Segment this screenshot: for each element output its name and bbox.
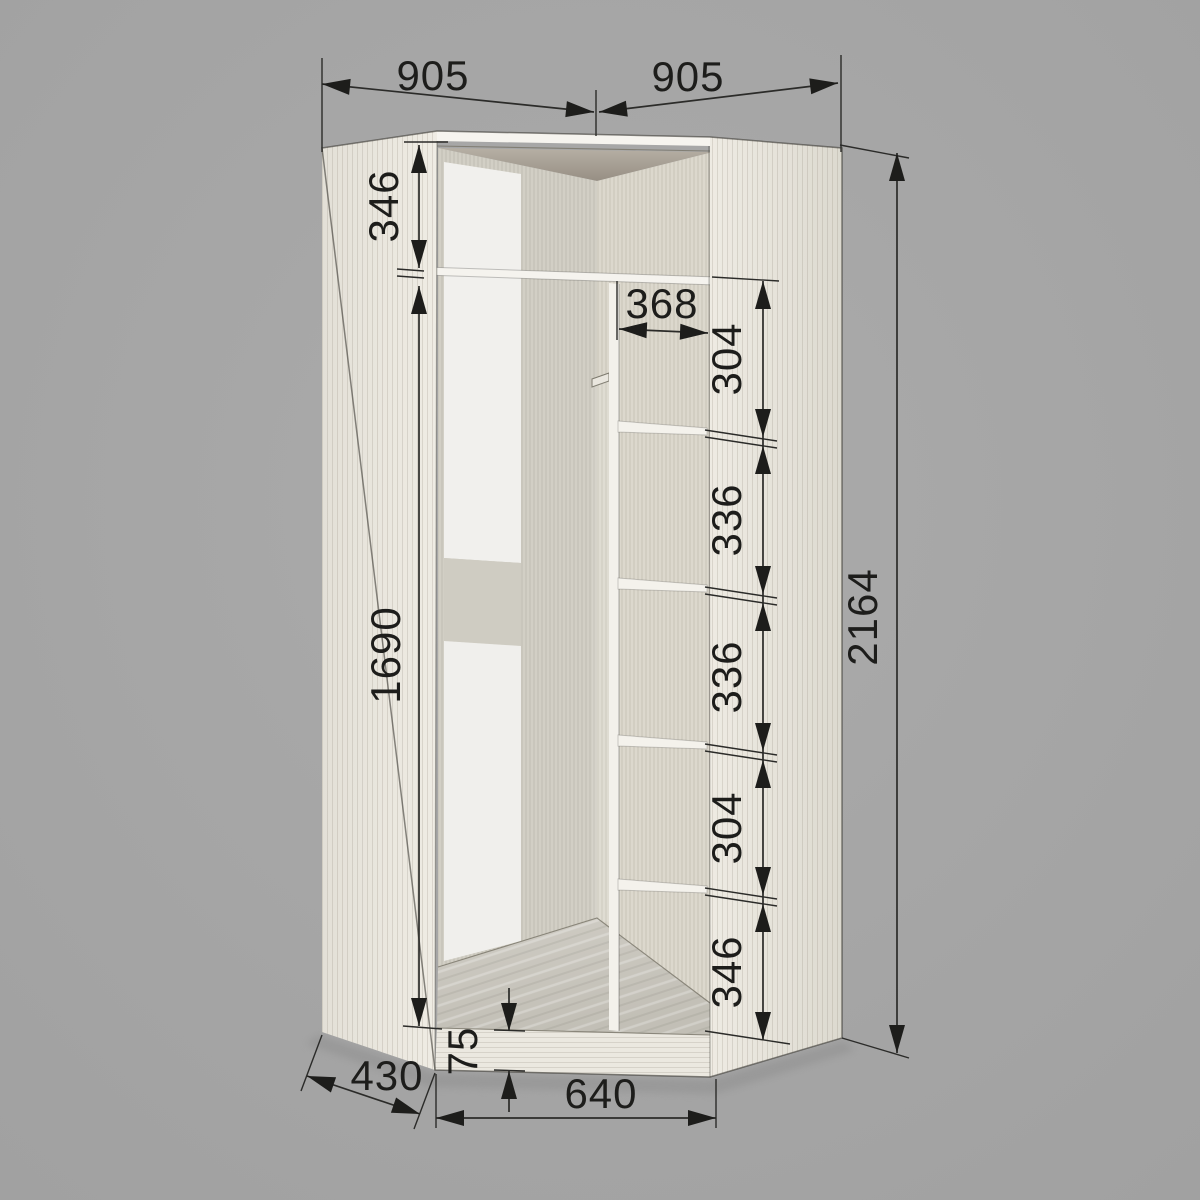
mirror-panel-upper [444,162,521,563]
back-wall-ledge-strip [592,381,609,922]
wardrobe-cabinet [322,131,842,1077]
dim-column-width: 368 [617,280,708,340]
dim-label: 304 [703,322,750,395]
dim-label: 905 [651,53,724,100]
mirror-panel-lower [444,641,521,961]
dim-label: 304 [703,791,750,864]
dim-label: 336 [703,640,750,713]
dim-label: 336 [703,483,750,556]
dim-label: 346 [703,935,750,1008]
dim-label: 905 [396,52,469,99]
dim-label: 640 [564,1070,637,1117]
wardrobe-dimension-diagram: 905 905 2164 346 1690 [0,0,1200,1200]
dim-label: 368 [625,280,698,327]
dim-label: 1690 [362,606,409,703]
divider-panel [609,283,619,1031]
dim-label: 2164 [839,568,886,665]
diagram-stage: 905 905 2164 346 1690 [0,0,1200,1200]
dim-label: 346 [360,169,407,242]
dim-label: 430 [350,1052,423,1099]
dim-label: 75 [439,1027,486,1076]
mirror-seam-band [444,558,521,646]
ext-line [494,1070,525,1071]
